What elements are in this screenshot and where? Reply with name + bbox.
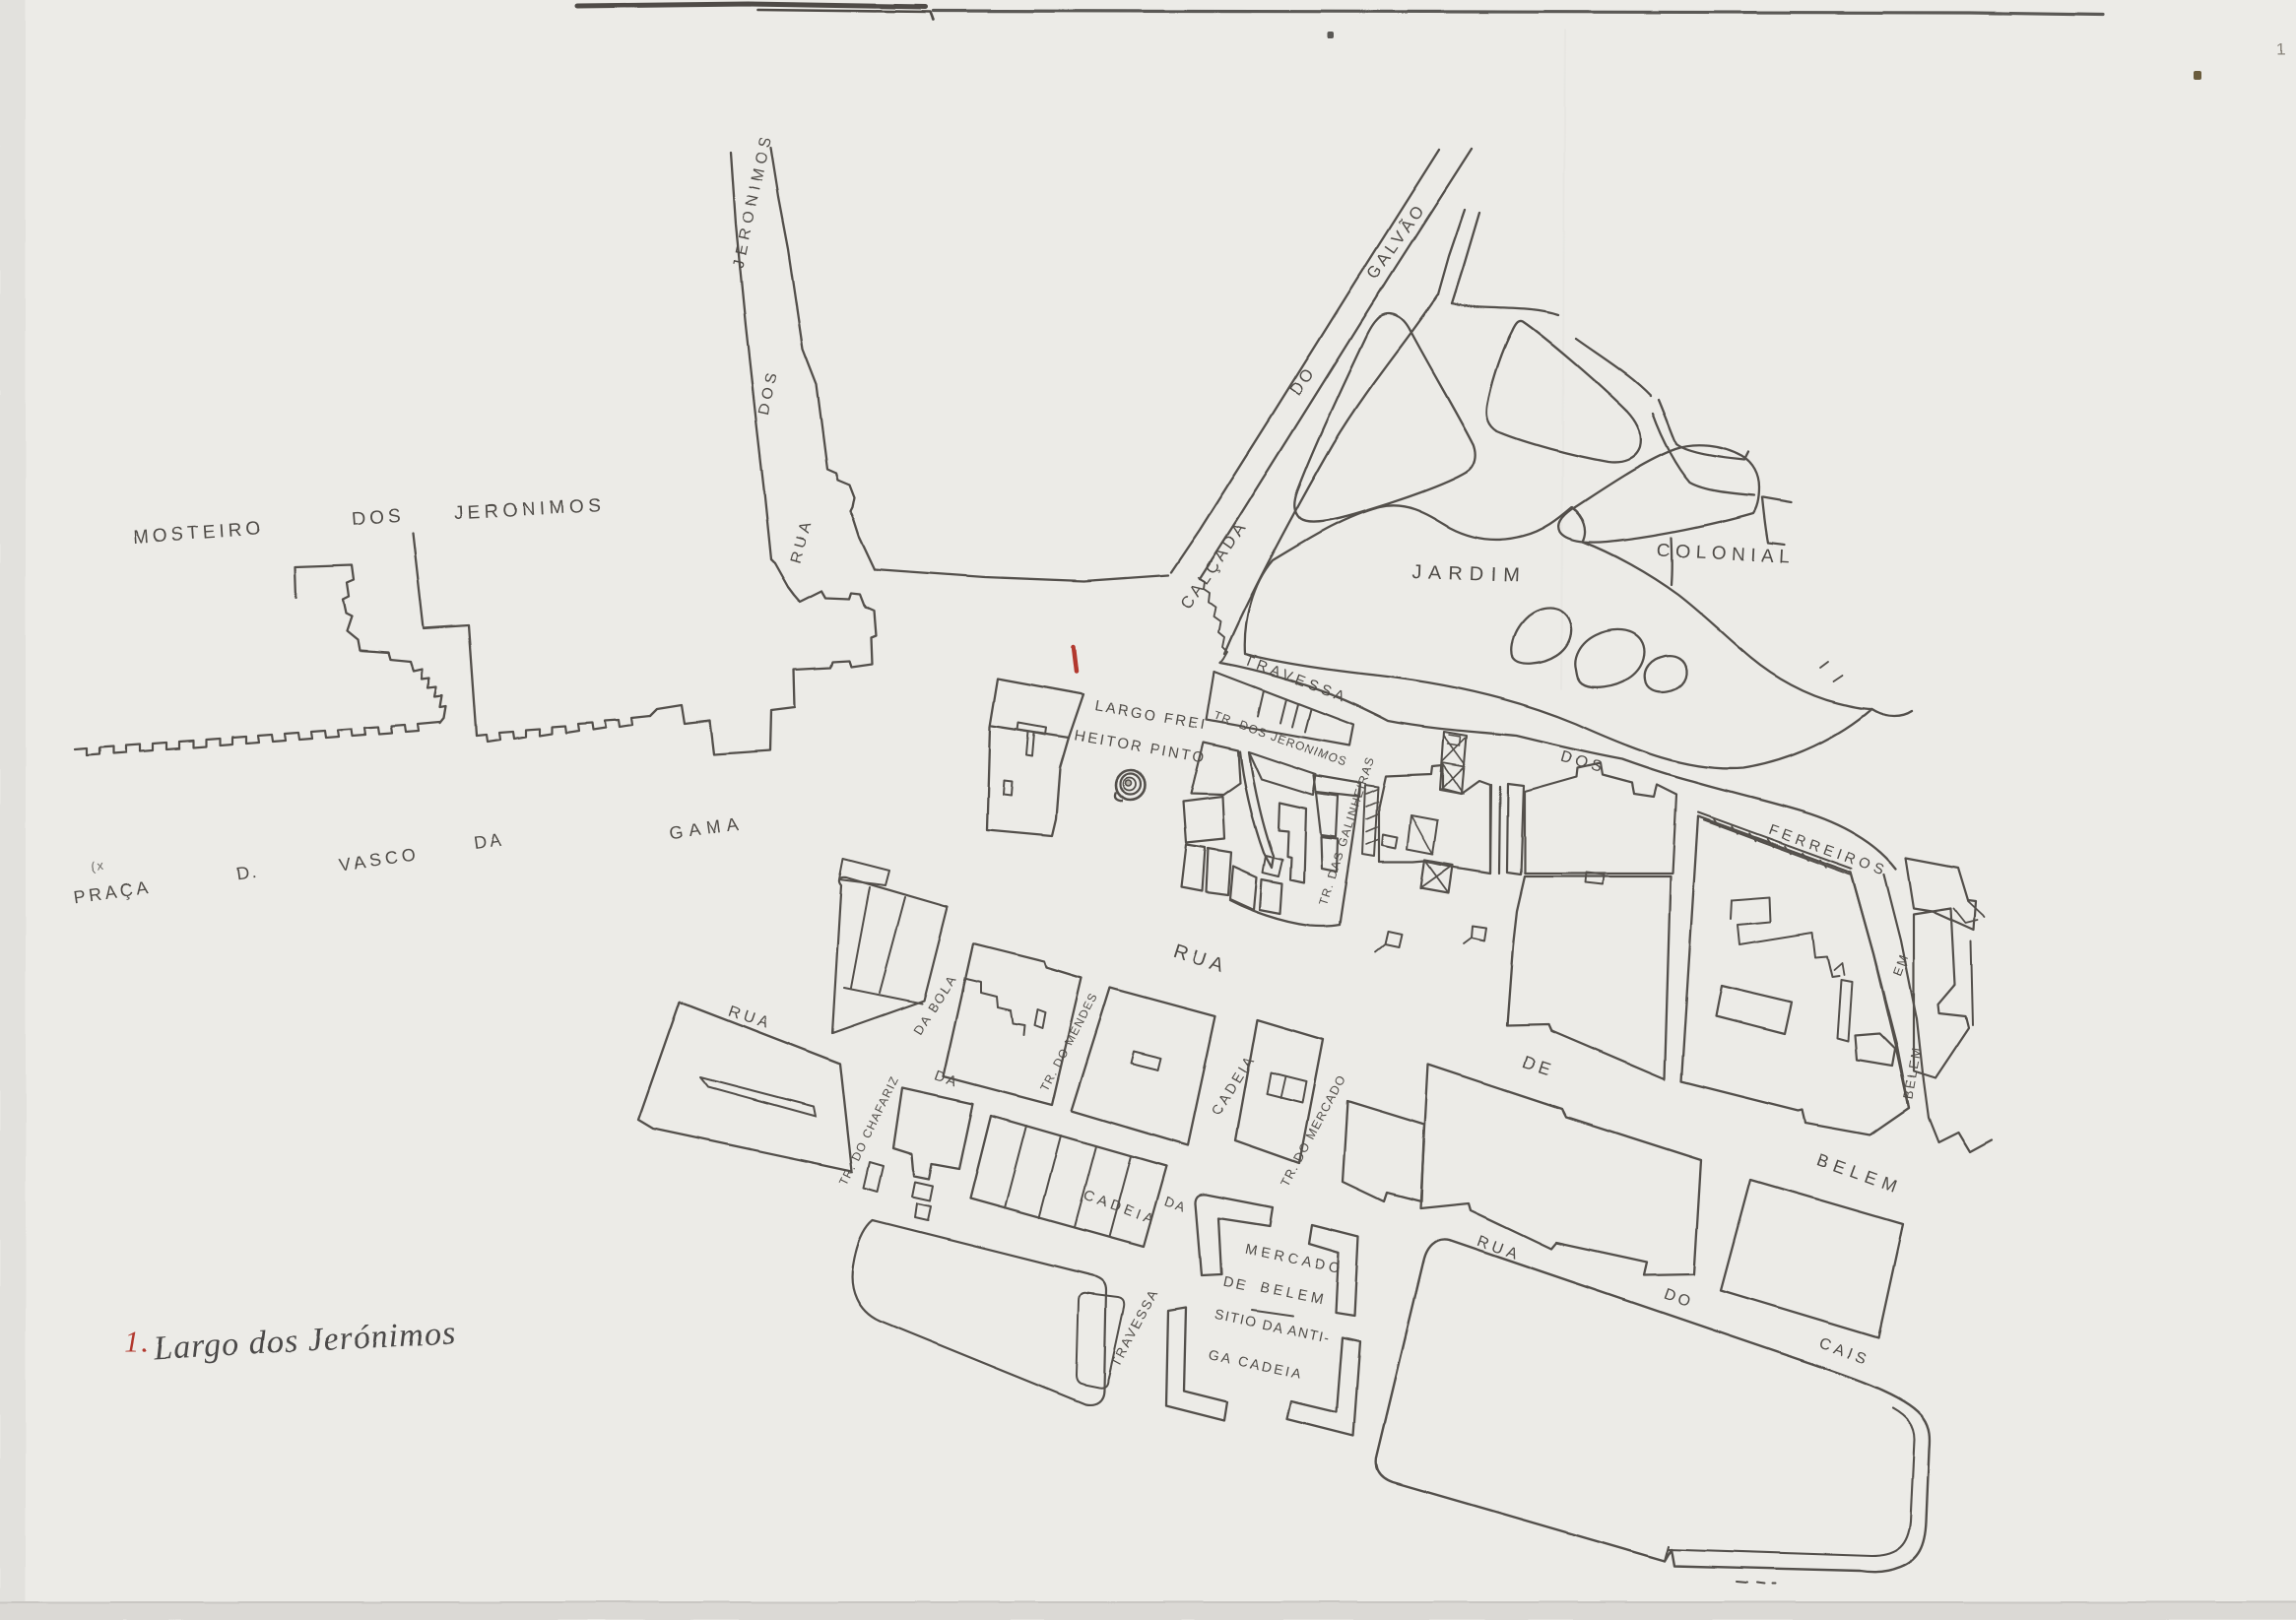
svg-text:D.: D. — [235, 862, 260, 884]
svg-text:JARDIM: JARDIM — [1411, 561, 1527, 587]
svg-text:1: 1 — [2276, 40, 2285, 59]
svg-text:(x: (x — [90, 858, 106, 875]
svg-text:1.: 1. — [125, 1326, 152, 1358]
svg-text:DA: DA — [472, 829, 504, 853]
svg-text:DOS: DOS — [351, 505, 405, 530]
